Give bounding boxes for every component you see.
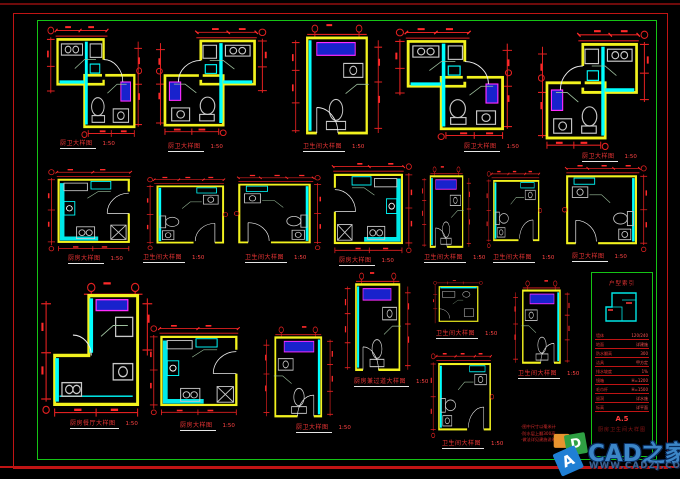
plan-p8 [234,174,322,250]
key-plan-icon [602,291,642,327]
title-block-row: 墙体120/240 [595,331,649,340]
plan-label-p6: 厨房大样图1:50 [68,256,123,263]
cad-drawing-sheet: 厨卫大样图1:50厨卫大样图1:50卫生间大样图1:50厨卫大样图1:50厨卫大… [0,0,680,479]
plan-p2 [156,28,268,136]
sheet-number: A.5 [592,415,652,423]
plan-p16 [342,272,412,376]
title-block-row: 毛巾杆H=1500 [595,385,649,394]
plan-label-p8: 卫生间大样图1:50 [245,255,306,262]
title-block-row: 洁具甲方定 [595,358,649,367]
plan-p6 [46,168,136,252]
plan-label-p3: 卫生间大样图1:50 [303,144,364,151]
plan-p1 [46,26,142,138]
plan-p15 [262,326,336,422]
title-block-row: 排水坡度1% [595,367,649,376]
plan-p11 [486,170,542,248]
plan-p19 [512,280,572,368]
plan-label-p10: 卫生间大样图1:50 [424,255,485,262]
plan-label-p19: 卫生间大样图1:50 [518,371,579,378]
plan-p17 [432,280,484,328]
title-block-row: 镜箱H=1200 [595,376,649,385]
plan-p7 [146,176,228,250]
plan-label-p15: 厨卫大样图1:50 [296,425,351,432]
plan-p10 [420,166,472,252]
plan-p14 [148,324,244,416]
plan-label-p11: 卫生间大样图1:50 [493,255,554,262]
plan-label-p16: 厨房兼过道大样图1:50 [354,379,428,386]
title-block-row: 标高详平面 [595,403,649,412]
plan-p12 [562,164,648,252]
title-block-row: 地面详建施 [595,340,649,349]
watermark: D A CAD之家 WWW.CADZJ.COM [548,428,680,479]
plan-label-p14: 厨房大样图1:50 [180,423,235,430]
title-block-header: 户型索引 [592,279,652,287]
plan-p18 [430,352,494,438]
title-block-row: 防水翻高300 [595,349,649,358]
plan-label-p12: 厨卫大样图1:50 [572,254,627,261]
plan-label-p9: 厨房大样图1:50 [339,258,394,265]
title-block-rows: 墙体120/240地面详建施防水翻高300洁具甲方定排水坡度1%镜箱H=1200… [595,331,649,412]
plan-label-p7: 卫生间大样图1:50 [143,255,204,262]
plan-label-p17: 卫生间大样图1:50 [436,331,497,338]
plan-p5 [538,30,650,150]
title-block-row: 留洞详水施 [595,394,649,403]
watermark-url: WWW.CADZJ.COM [589,461,680,471]
top-rule-line [0,3,680,5]
plan-label-p5: 厨卫大样图1:50 [582,154,637,161]
plan-label-p18: 卫生间大样图1:50 [442,441,503,448]
plan-p3 [288,24,384,140]
plan-label-p4: 厨卫大样图1:50 [464,144,519,151]
plan-p13 [40,282,162,418]
plan-p4 [394,28,512,140]
plan-label-p13: 厨房餐厅大样图1:50 [70,421,138,428]
plan-label-p2: 厨卫大样图1:50 [168,144,223,151]
plan-label-p1: 厨卫大样图1:50 [60,141,115,148]
plan-p9 [328,162,414,254]
